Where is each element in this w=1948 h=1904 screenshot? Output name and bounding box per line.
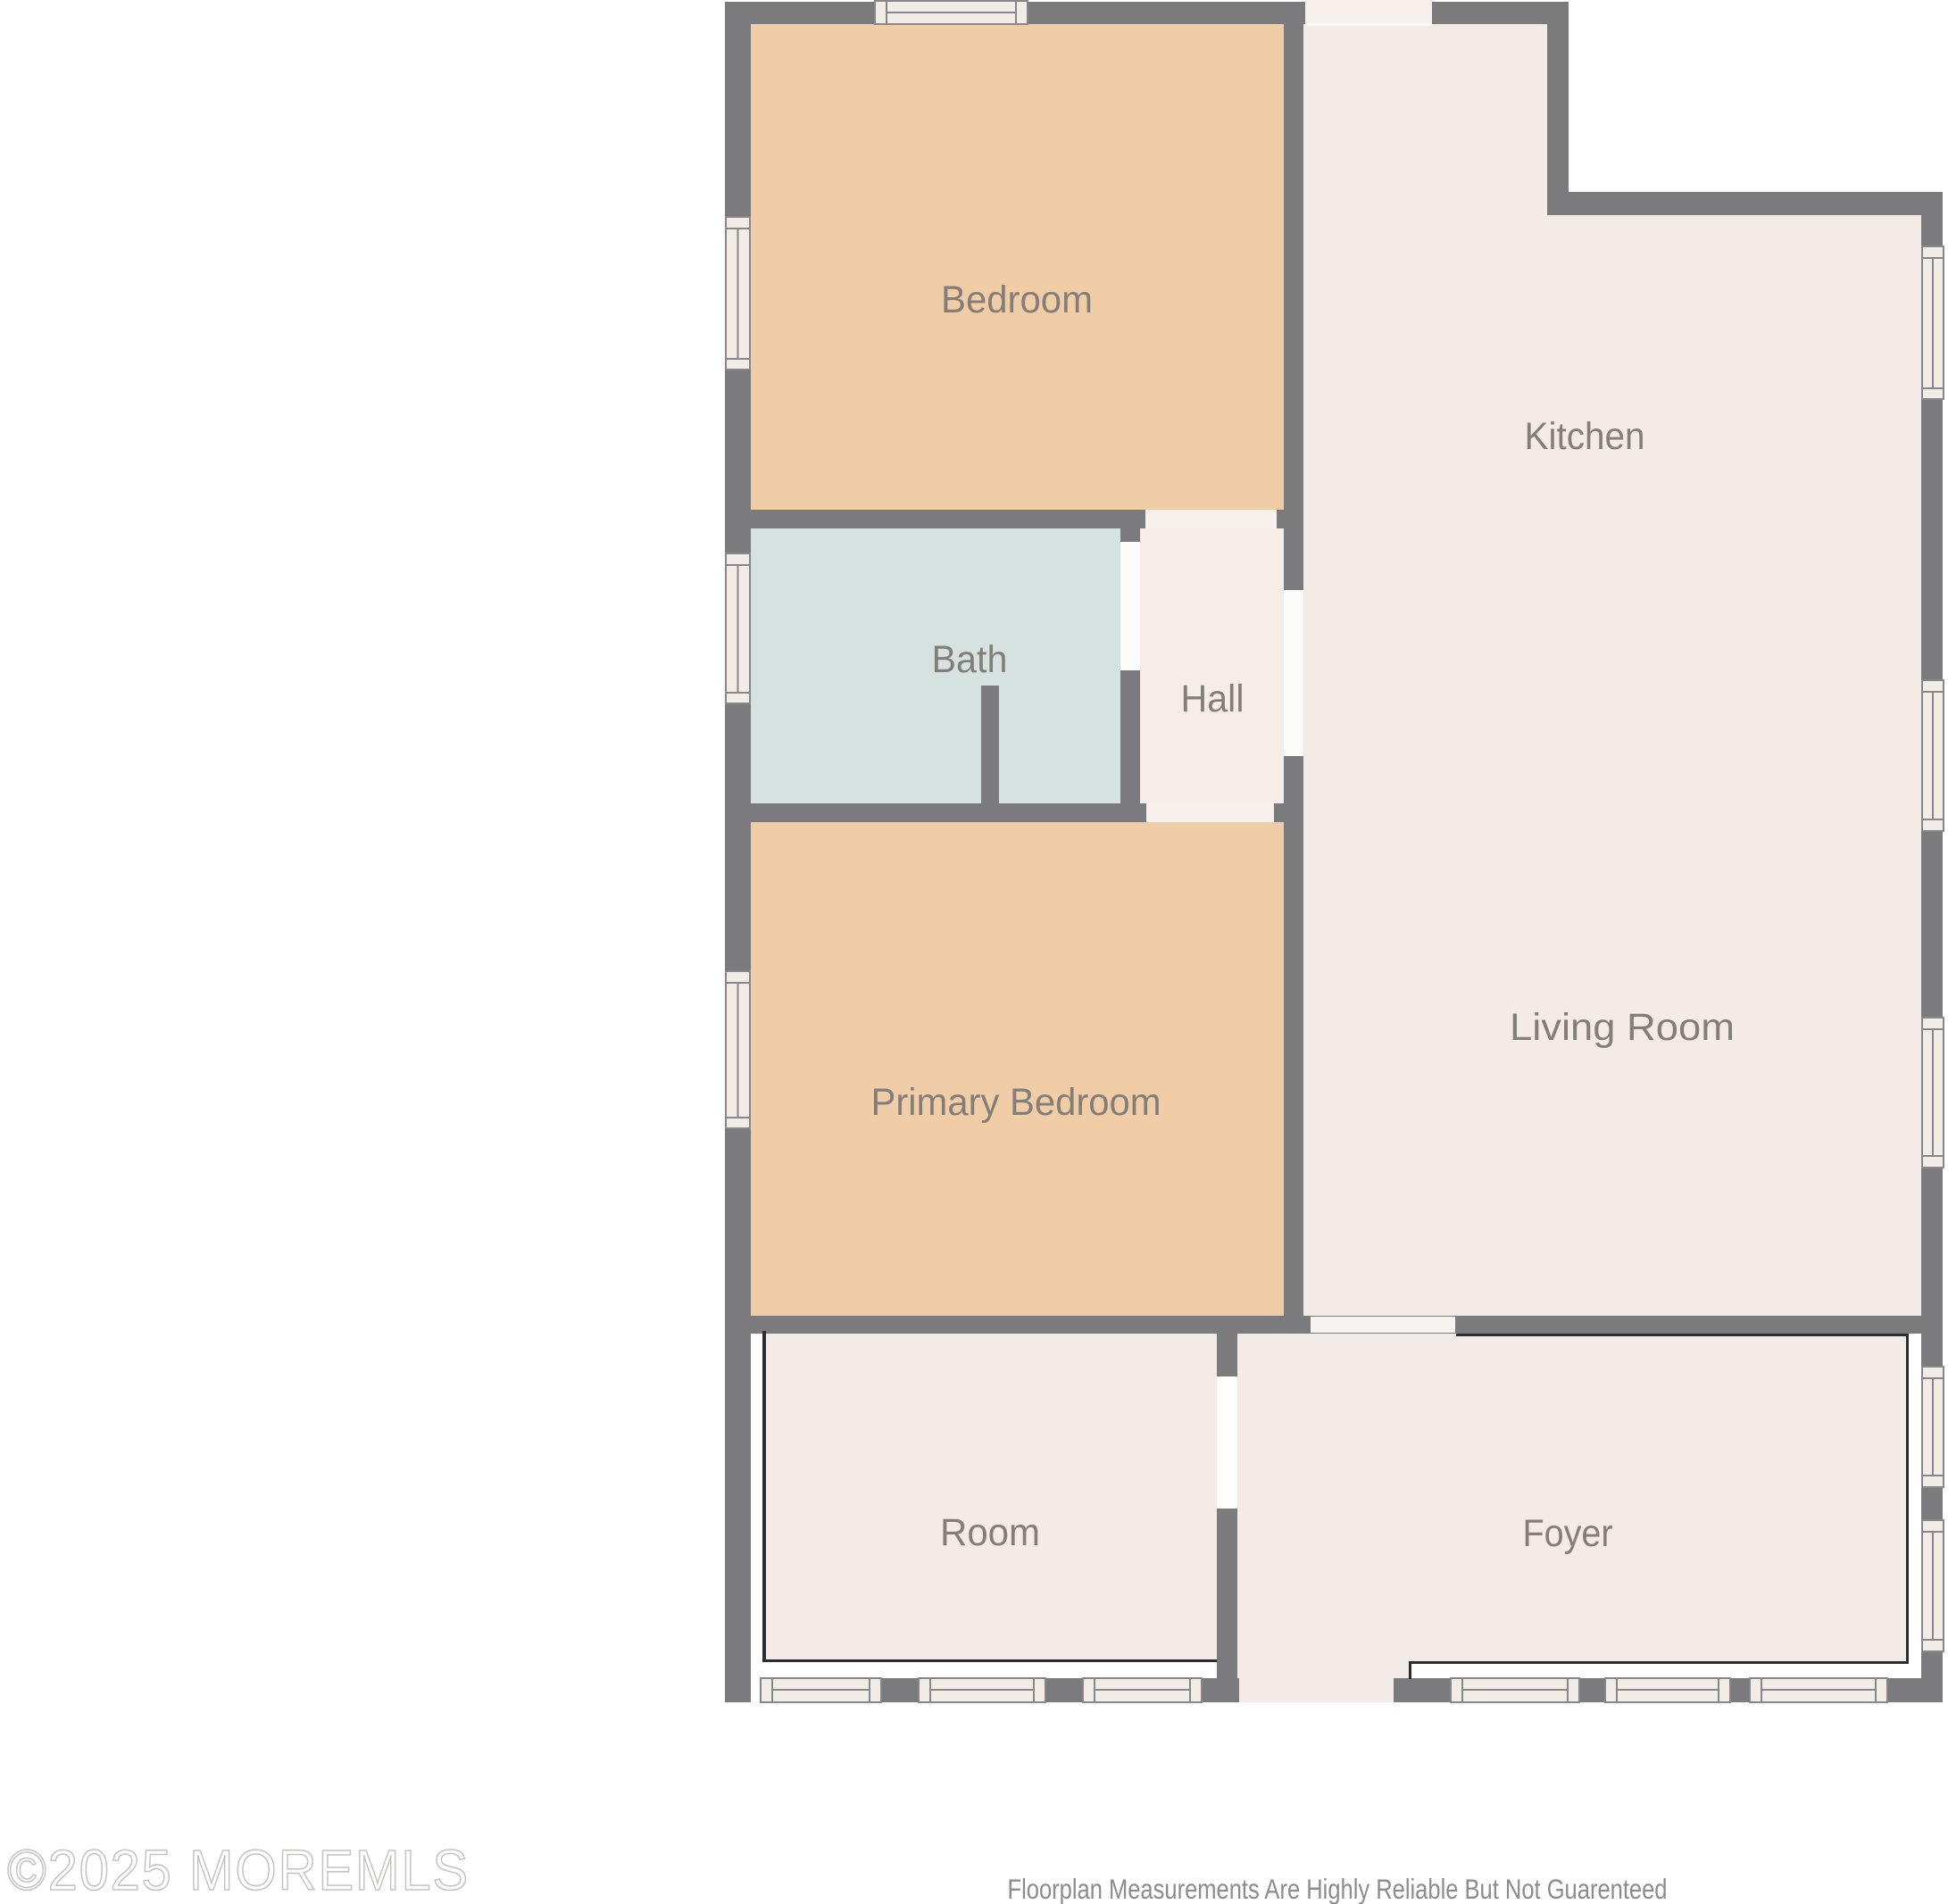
svg-text:Living Room: Living Room: [1510, 1006, 1735, 1049]
svg-text:Hall: Hall: [1181, 678, 1245, 720]
svg-text:©2025 MOREMLS: ©2025 MOREMLS: [7, 1838, 470, 1902]
svg-text:Primary Bedroom: Primary Bedroom: [871, 1081, 1161, 1124]
svg-text:Bedroom: Bedroom: [941, 279, 1093, 321]
svg-text:Floorplan Measurements Are Hig: Floorplan Measurements Are Highly Reliab…: [1008, 1873, 1668, 1904]
svg-text:Bath: Bath: [932, 638, 1008, 681]
svg-text:Room: Room: [940, 1511, 1040, 1554]
svg-text:Kitchen: Kitchen: [1525, 415, 1645, 458]
svg-text:Foyer: Foyer: [1523, 1512, 1613, 1555]
